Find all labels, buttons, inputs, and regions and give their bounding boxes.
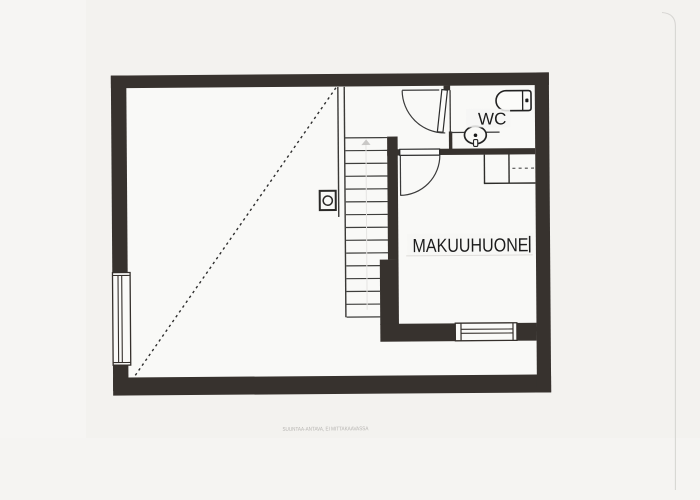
svg-text:WC: WC — [478, 109, 507, 128]
svg-text:MAKUUHUONE: MAKUUHUONE — [412, 235, 528, 257]
svg-text:SUUNTAA-ANTAVA, EI MITTAKAAVAS: SUUNTAA-ANTAVA, EI MITTAKAAVASSA — [282, 426, 368, 433]
